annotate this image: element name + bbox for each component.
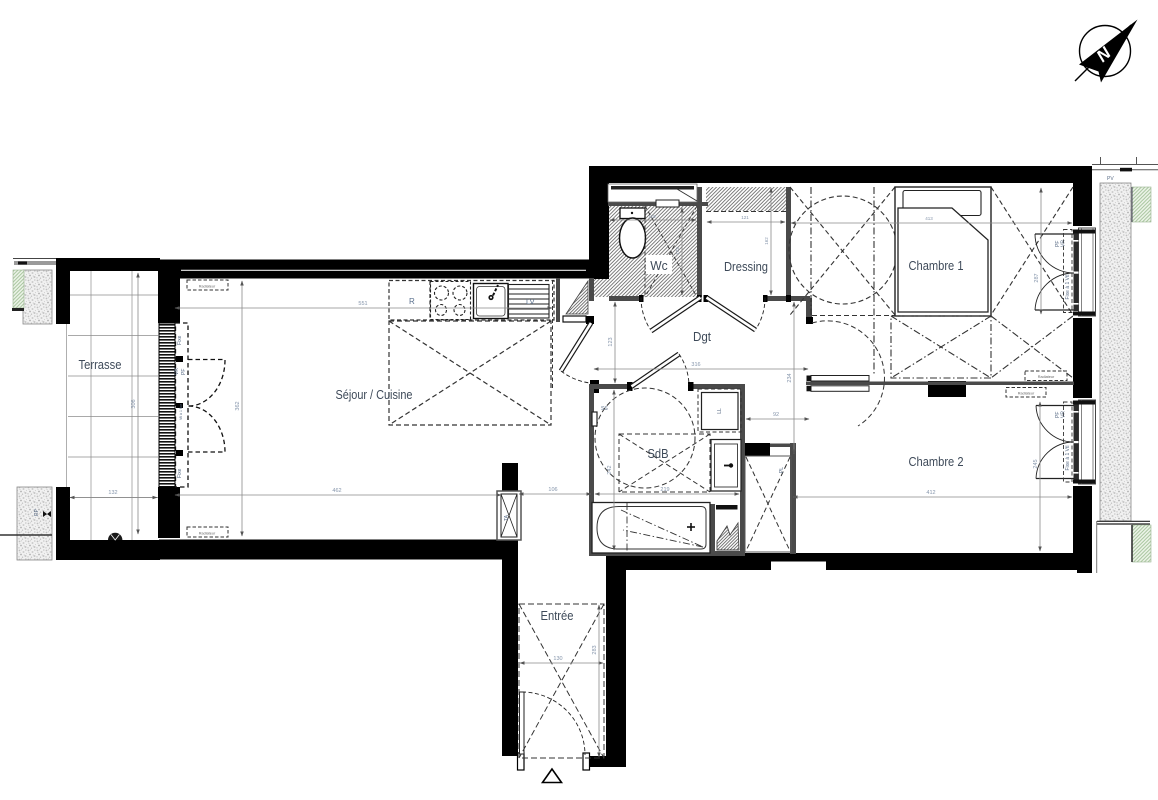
svg-text:Entrée: Entrée [541,608,574,623]
svg-text:245: 245 [1033,459,1039,468]
svg-text:VR: VR [1061,411,1067,418]
svg-text:PF: PF [181,369,187,375]
svg-text:283: 283 [592,645,598,654]
svg-text:Fixe: Fixe [177,468,183,478]
svg-text:130: 130 [553,656,562,662]
svg-text:Radiateur: Radiateur [1018,392,1035,396]
svg-text:TA: TA [504,514,510,521]
svg-text:Radiateur: Radiateur [1038,375,1055,379]
svg-text:RP: RP [34,508,40,516]
svg-text:162: 162 [764,237,769,245]
svg-text:119: 119 [648,214,656,219]
svg-text:316: 316 [691,362,700,368]
svg-text:92: 92 [773,412,779,418]
svg-text:LL: LL [717,408,723,414]
svg-text:121: 121 [741,215,749,220]
svg-text:413: 413 [925,216,933,221]
svg-text:Chambre 1: Chambre 1 [909,258,964,273]
svg-text:Fixe à 1 Vtl: Fixe à 1 Vtl [1065,274,1071,299]
svg-text:Chambre 2: Chambre 2 [909,454,964,469]
svg-text:123: 123 [608,337,614,346]
svg-text:242: 242 [607,465,613,474]
svg-text:412: 412 [926,490,935,496]
svg-text:306: 306 [131,399,137,408]
svg-text:Terrasse: Terrasse [79,357,122,372]
svg-text:551: 551 [358,301,367,307]
svg-text:362: 362 [235,401,241,410]
svg-text:PL: PL [779,467,785,473]
svg-text:PV: PV [1107,176,1114,182]
svg-text:VR: VR [174,368,180,375]
svg-text:234: 234 [787,373,793,382]
svg-text:219: 219 [660,487,669,493]
svg-text:LV: LV [526,297,535,306]
svg-text:462: 462 [332,488,341,494]
svg-text:VR: VR [1061,240,1067,247]
svg-text:Radiateur: Radiateur [199,532,216,536]
svg-text:Vtl à 1 fixe: Vtl à 1 fixe [179,404,183,420]
svg-text:SdB: SdB [648,446,669,461]
svg-text:172: 172 [675,247,680,255]
svg-text:Radiateur: Radiateur [199,285,216,289]
svg-text:132: 132 [108,490,117,496]
svg-text:Wc: Wc [650,258,668,273]
svg-text:Dressing: Dressing [724,259,768,274]
svg-text:Dgt: Dgt [693,329,711,344]
svg-text:106: 106 [548,487,557,493]
svg-text:SS: SS [601,406,608,412]
svg-text:Fixe à 1 Vtl: Fixe à 1 Vtl [1065,445,1071,470]
svg-text:R: R [409,297,415,306]
svg-text:Séjour / Cuisine: Séjour / Cuisine [336,387,413,402]
svg-text:287: 287 [1034,273,1040,282]
svg-text:Fixe: Fixe [177,335,183,345]
